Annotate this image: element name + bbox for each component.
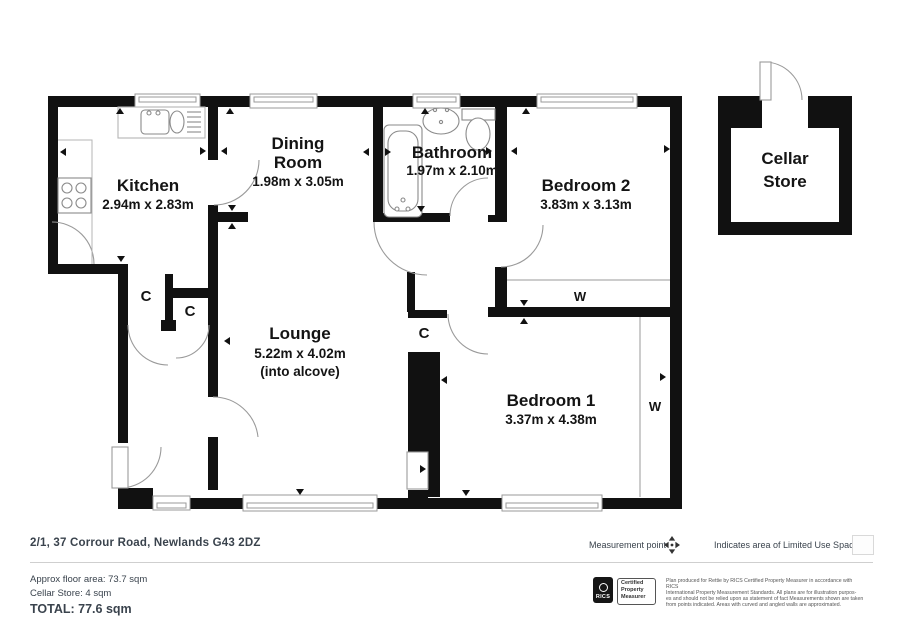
- disclaimer-line1: Plan produced for Rettie by RICS Certifi…: [666, 578, 864, 590]
- disclaimer-line4: from points indicated. Areas with curved…: [666, 602, 864, 608]
- limited-use-sample-box: [852, 535, 874, 555]
- total-area: TOTAL: 77.6 sqm: [30, 602, 132, 616]
- certified-property-measurer-badge: Certified Property Measurer: [617, 578, 656, 605]
- cert-line3: Measurer: [621, 594, 655, 601]
- disclaimer-text: Plan produced for Rettie by RICS Certifi…: [666, 578, 864, 608]
- footer-divider: [30, 562, 873, 563]
- rics-emblem-icon: [599, 583, 608, 592]
- limited-use-legend: Indicates area of Limited Use Space: [714, 540, 859, 550]
- rics-abbr: RICS: [596, 594, 610, 600]
- rics-logo: RICS: [593, 577, 613, 603]
- measurement-point-icon: [664, 536, 680, 559]
- measurement-point-legend: Measurement point: [589, 540, 666, 550]
- cellar-store-area: Cellar Store: 4 sqm: [30, 588, 111, 599]
- cert-line1: Certified: [621, 580, 655, 587]
- approx-floor-area: Approx floor area: 73.7 sqm: [30, 574, 147, 585]
- footer: 2/1, 37 Corrour Road, Newlands G43 2DZ A…: [0, 0, 900, 636]
- cert-line2: Property: [621, 587, 655, 594]
- property-address: 2/1, 37 Corrour Road, Newlands G43 2DZ: [30, 537, 261, 549]
- floorplan-page: Kitchen 2.94m x 2.83m Dining Room 1.98m …: [0, 0, 900, 636]
